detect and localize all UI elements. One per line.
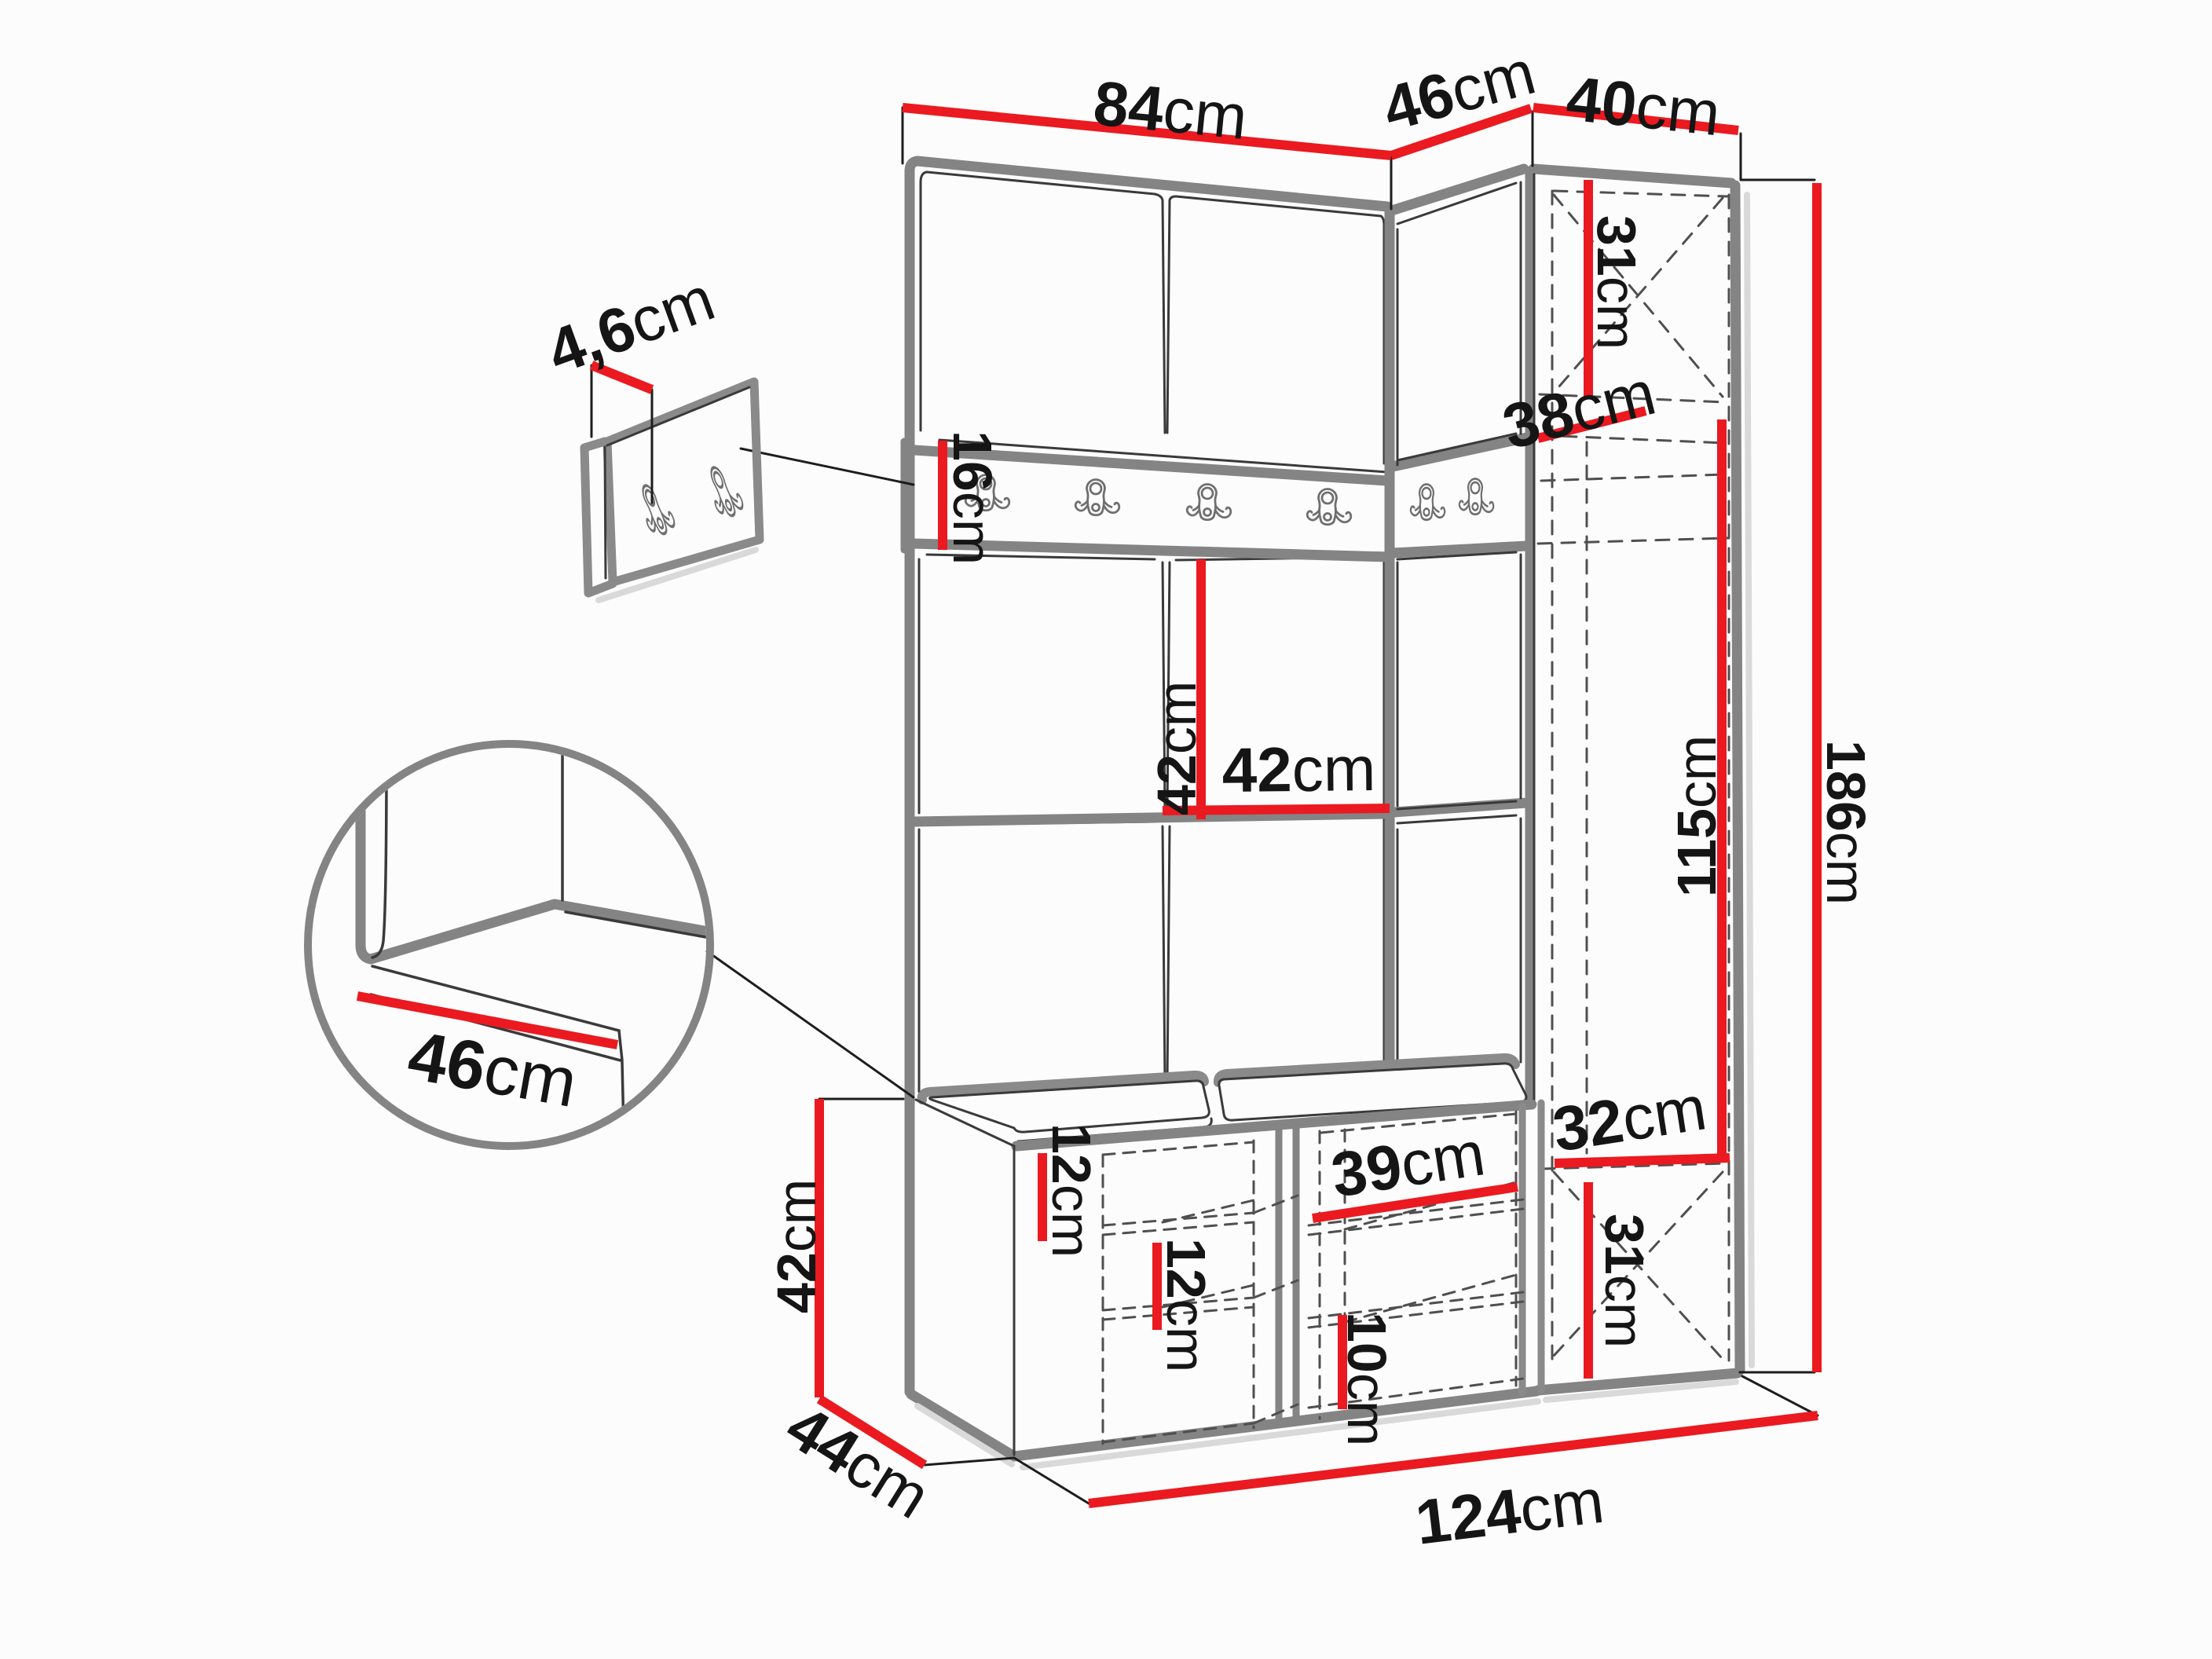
svg-text:31cm: 31cm [1586,215,1647,350]
svg-text:186cm: 186cm [1815,740,1877,905]
svg-text:42cm: 42cm [766,1179,827,1313]
svg-text:42cm: 42cm [1221,734,1376,805]
svg-text:42cm: 42cm [1146,681,1207,815]
svg-text:12cm: 12cm [1155,1238,1217,1372]
svg-text:10cm: 10cm [1336,1312,1397,1446]
svg-text:31cm: 31cm [1594,1214,1655,1348]
svg-text:115cm: 115cm [1666,735,1727,897]
svg-text:16cm: 16cm [942,430,1003,565]
svg-text:84cm: 84cm [1090,68,1250,152]
svg-text:12cm: 12cm [1041,1123,1102,1258]
